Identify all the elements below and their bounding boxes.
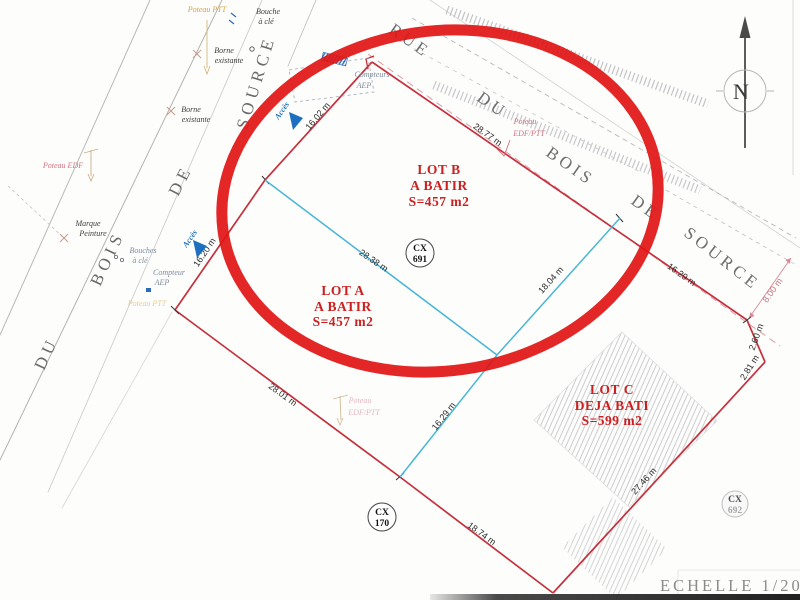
acces-arrow-icon [289, 112, 303, 130]
lot-c-area: S=599 m2 [582, 413, 643, 428]
poteau-mid-icon [333, 395, 348, 425]
dim-division-ac: 16.29 m [430, 400, 458, 432]
compteur-aep-label-2: AEP [154, 278, 170, 287]
bouches-a-cle-label-1: Bouches [129, 246, 156, 255]
utility-annotations: Poteau PTT Bouche à clé Borne existante … [8, 5, 545, 425]
top-street-markings [398, 0, 800, 266]
cx-marker-691: CX 691 [406, 239, 434, 267]
street-top-du: DU [474, 88, 512, 122]
north-label: N [733, 79, 749, 104]
bouche-a-cle-icon [250, 47, 254, 51]
lot-a-area: S=457 m2 [313, 314, 374, 329]
borne-existante-2-label-1: Borne [181, 105, 201, 114]
bouche-icon [120, 258, 123, 261]
lot-b-name: LOT B [417, 162, 460, 177]
poteau-edf-ptt-street-label-1: Poteau [513, 117, 537, 126]
lot-b-area: S=457 m2 [409, 194, 470, 209]
scale-label: ECHELLE 1/200 [660, 576, 800, 595]
compteurs-aep-label-2: AEP [356, 81, 372, 90]
bouche-a-cle-label-1: Bouche [256, 7, 280, 16]
dim-street-offset: 8.00 m [761, 276, 785, 304]
north-arrow: N [716, 16, 774, 148]
plan-canvas: DU BOIS DE SOURCE RUE DU BOIS DE SOURCE [0, 0, 800, 600]
svg-text:CX: CX [375, 508, 389, 518]
svg-text:692: 692 [728, 506, 743, 516]
poteau-edf-pole-icon [84, 149, 98, 181]
lot-c-name: LOT C [590, 382, 634, 397]
marque-peinture-label-1: Marque [74, 219, 100, 228]
borne-existante-1-label-1: Borne [214, 46, 234, 55]
dim-lot-b-left: 16.02 m [303, 100, 332, 131]
cx-marker-692: CX 692 [722, 491, 748, 517]
lot-c-status: DEJA BATI [575, 398, 649, 413]
lot-b-status: A BATIR [410, 178, 468, 193]
compteurs-aep-label-1: Compteurs [354, 70, 389, 79]
dim-division-bc: 18.04 m [536, 265, 565, 296]
dim-lot-c-bottom: 18.74 m [466, 520, 498, 547]
north-arrow-head-icon [740, 16, 751, 38]
marque-cross-icon [60, 234, 68, 242]
borne-existante-1-label-2: existante [215, 56, 244, 65]
poteau-edf-label: Poteau EDF [42, 161, 83, 170]
boundary-bottom-edge [175, 310, 553, 593]
neighbour-building-hatch [562, 497, 667, 599]
scan-bottom-strip [430, 594, 800, 600]
hydrant-marks-icon [229, 13, 236, 24]
street-left-du: DU [30, 333, 62, 372]
bouche-a-cle-label-2: à clé [258, 17, 274, 26]
survey-plan-page: DU BOIS DE SOURCE RUE DU BOIS DE SOURCE [0, 0, 800, 600]
marque-peinture-label-2: Peinture [78, 229, 107, 238]
bouches-a-cle-label-2: à clé [132, 256, 148, 265]
left-street-lines [0, 0, 316, 508]
dim-lot-a-bottom: 28.01 m [267, 381, 299, 408]
offset-arrow-icon [749, 312, 755, 318]
dim-lot-c-street: 16.29 m [666, 261, 698, 288]
svg-text:691: 691 [413, 255, 428, 265]
dim-lot-a-left: 16.20 m [191, 236, 217, 269]
cx-marker-170: CX 170 [368, 503, 396, 531]
svg-text:CX: CX [413, 244, 427, 254]
poteau-ptt-left-label: Poteau PTT [127, 299, 167, 308]
poteau-edf-ptt-street-label-2: EDF/PTT [512, 129, 545, 138]
poteau-edf-ptt-mid-label-2: EDF/PTT [347, 408, 380, 417]
poteau-edf-ptt-mid-label-1: Poteau [348, 396, 372, 405]
compteur-aep-label-1: Compteur [153, 268, 186, 277]
lot-a-name: LOT A [321, 283, 364, 298]
poteau-ptt-top-label: Poteau PTT [187, 5, 227, 14]
street-left-de: DE [165, 161, 197, 199]
borne-existante-2-label-2: existante [182, 115, 211, 124]
lot-a-status: A BATIR [314, 299, 372, 314]
parcel-boundary [175, 56, 765, 593]
lot-labels: LOT B A BATIR S=457 m2 LOT A A BATIR S=4… [313, 162, 650, 428]
dim-division-ab: 28.38 m [357, 247, 390, 273]
svg-text:170: 170 [375, 519, 390, 529]
compteur-icon [146, 288, 151, 292]
dim-corner-lower: 2.81 m [738, 353, 761, 382]
svg-text:CX: CX [728, 495, 742, 505]
